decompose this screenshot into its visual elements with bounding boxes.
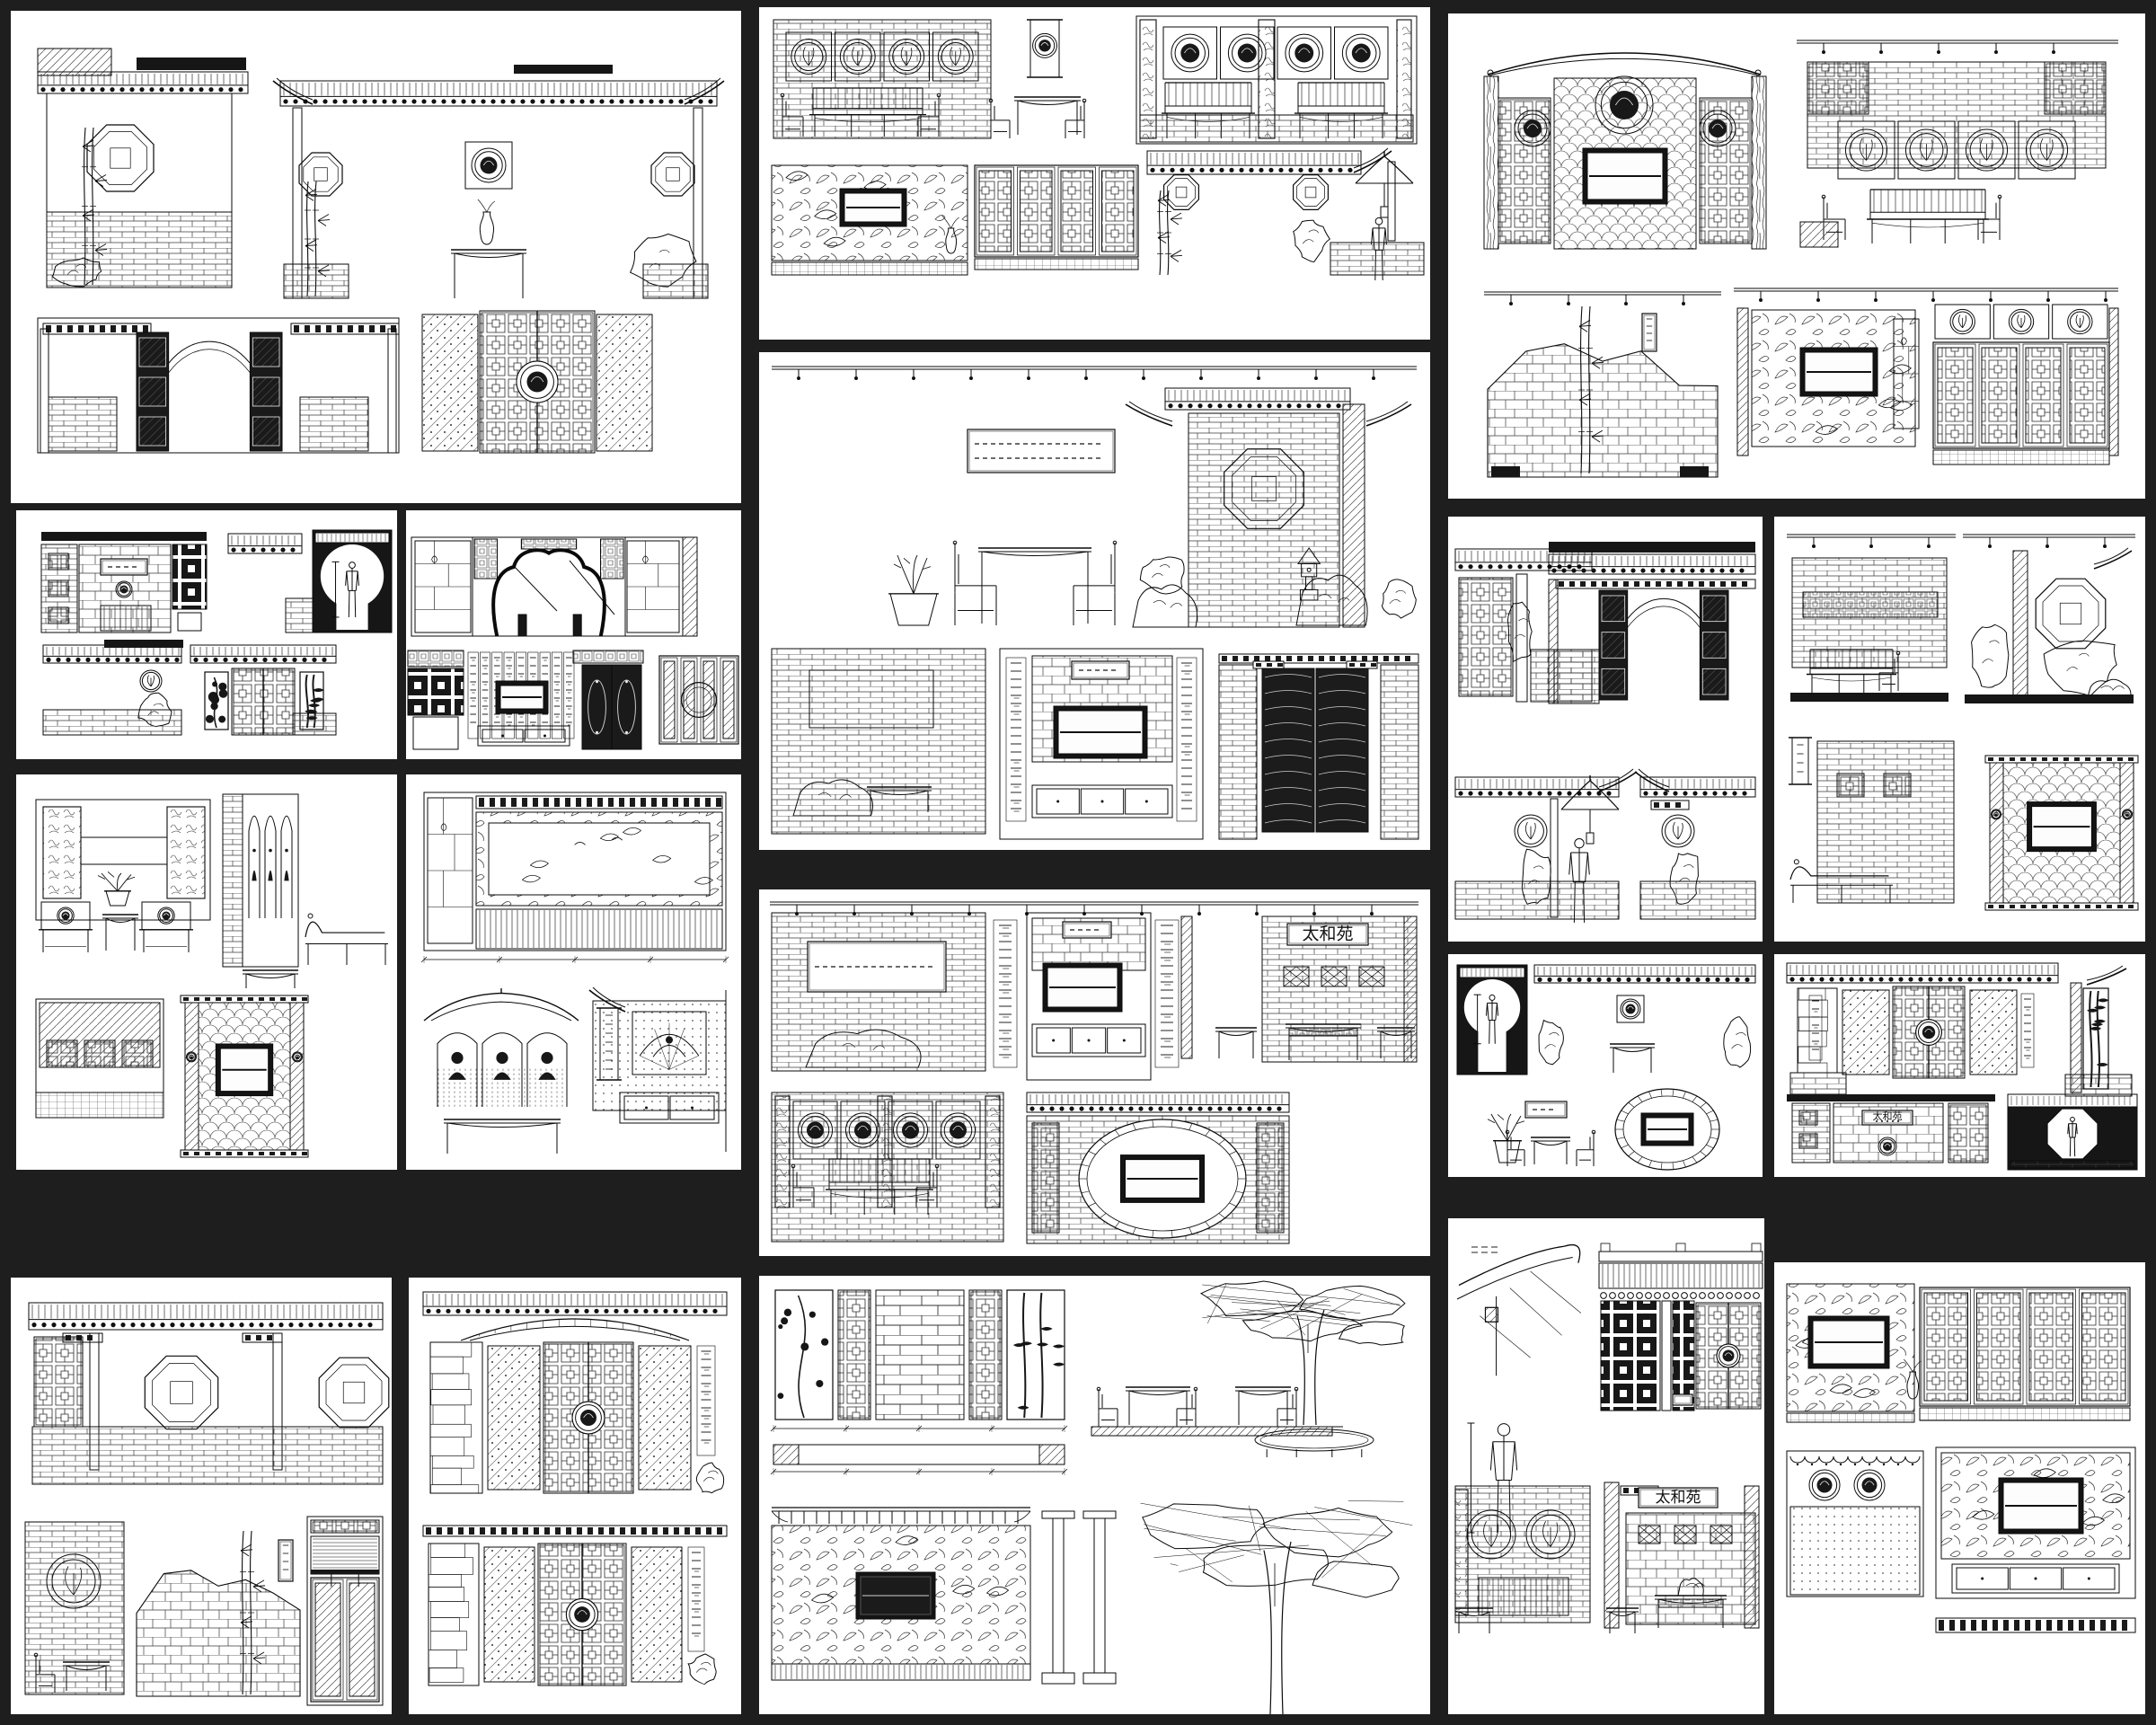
frieze-room-octagon-garden-and-brick-wall [1774,517,2145,942]
cad-collage-sheet: 太和苑太和苑太和苑 [0,0,2156,1725]
courtyard-wall-and-gate-elevations [11,11,741,503]
veranda-stone-wall-and-glass-door [11,1278,392,1714]
moon-gate-and-courtyard-wall [1448,954,1763,1177]
plaque-walls-taihe-gate-and-moon-tv-wall: 太和苑 [759,889,1430,1256]
garden-tv-wall-and-ornate-tv-wall [1774,1262,2145,1714]
pagoda-detail-and-temple-gate: 太和苑 [1448,1218,1764,1714]
stone-feature-wall-and-moon-arch [16,510,397,759]
cloud-opening-wall-and-media-cabinetry [406,510,741,759]
entry-gate-elevations [409,1278,741,1714]
screen-wall-trees-and-garden-wall [759,1276,1430,1714]
tea-rooms-and-garden-gate [759,7,1430,340]
carved-mural-shrine-and-study [406,774,741,1170]
svg-text:太和苑: 太和苑 [1873,1110,1903,1122]
cad-collage-canvas: 太和苑太和苑太和苑 [0,0,2156,1725]
svg-text:太和苑: 太和苑 [1302,924,1353,943]
gate-elevation-and-octagon-portal: 太和苑 [1774,954,2145,1177]
hall-wall-and-courtyard-gate [759,352,1430,850]
svg-text:太和苑: 太和苑 [1656,1489,1701,1507]
medallion-tv-wall-tea-room-and-slate-wall [1448,13,2145,499]
panel-paper [1448,1218,1764,1714]
living-room-walls-and-tv-wall [16,774,397,1170]
corridor-arch-and-courtyard-doors [1448,517,1763,942]
